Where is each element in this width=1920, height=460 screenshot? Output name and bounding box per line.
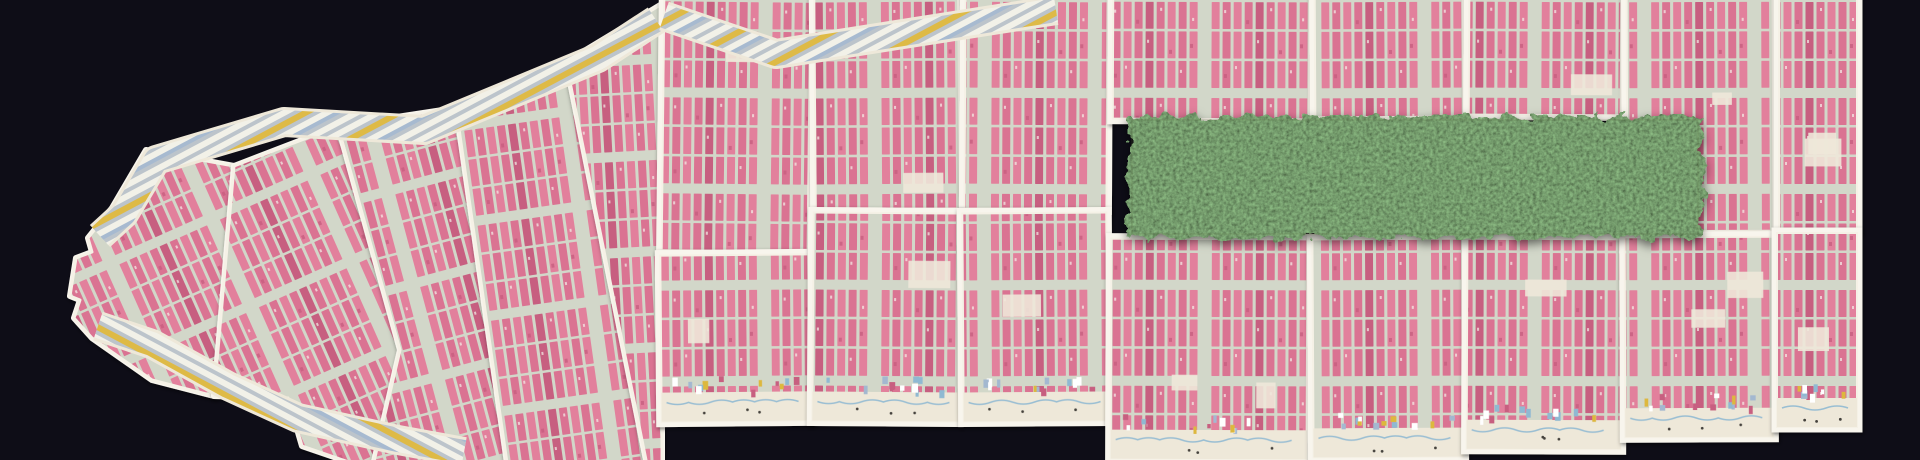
atlas-plate <box>1110 0 1312 122</box>
atlas-plate <box>959 209 1110 424</box>
atlas-plate <box>657 251 812 424</box>
artwork-canvas <box>0 0 1920 460</box>
atlas-plate <box>1464 236 1625 453</box>
atlas-plate <box>1774 230 1860 430</box>
atlas-plate <box>1466 0 1625 118</box>
central-park-foliage <box>1128 116 1702 238</box>
atlas-plate <box>1622 234 1777 441</box>
atlas-plate <box>1309 236 1466 460</box>
atlas-plate <box>809 209 962 424</box>
atlas-plate <box>1776 0 1860 232</box>
atlas-plate <box>1312 0 1467 120</box>
atlas-plate <box>1108 236 1311 460</box>
manhattan-atlas-collage <box>0 0 1920 460</box>
